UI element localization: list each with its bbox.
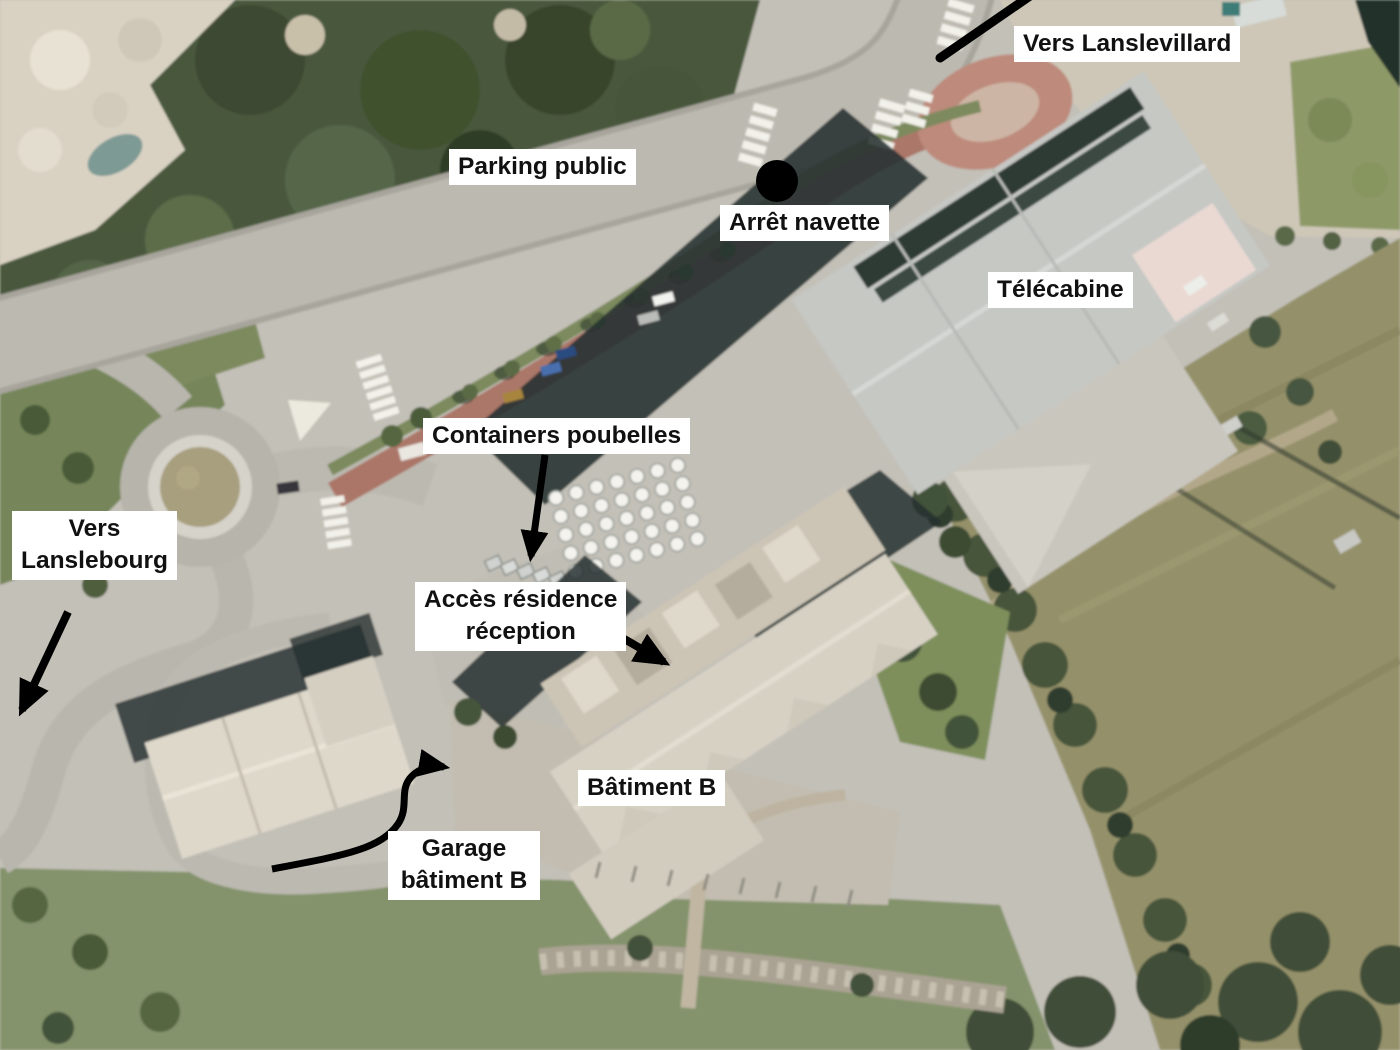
- label-vers-lanslevillard: Vers Lanslevillard: [1014, 26, 1240, 62]
- label-vers-lanslebourg-line2: Lanslebourg: [21, 545, 168, 577]
- annotation-layer: [0, 0, 1400, 1050]
- label-garage-batiment-b: Garage bâtiment B: [388, 831, 540, 900]
- label-acces-residence-line2: réception: [424, 616, 617, 648]
- label-acces-residence-line1: Accès résidence: [424, 584, 617, 616]
- label-batiment-b: Bâtiment B: [578, 770, 725, 806]
- label-vers-lanslebourg-line1: Vers: [21, 513, 168, 545]
- label-telecabine: Télécabine: [988, 272, 1133, 308]
- label-garage-line2: bâtiment B: [397, 865, 531, 897]
- containers-arrow: [531, 455, 545, 556]
- label-containers-poubelles: Containers poubelles: [423, 418, 690, 454]
- label-garage-line1: Garage: [397, 833, 531, 865]
- lanslebourg-arrow: [22, 612, 68, 710]
- label-acces-residence: Accès résidence réception: [415, 582, 626, 651]
- shuttle-stop-dot: [756, 160, 798, 202]
- label-arret-navette: Arrêt navette: [720, 205, 889, 241]
- label-parking-public: Parking public: [449, 149, 636, 185]
- label-vers-lanslebourg: Vers Lanslebourg: [12, 511, 177, 580]
- annotated-aerial-map: Vers Lanslevillard Parking public Arrêt …: [0, 0, 1400, 1050]
